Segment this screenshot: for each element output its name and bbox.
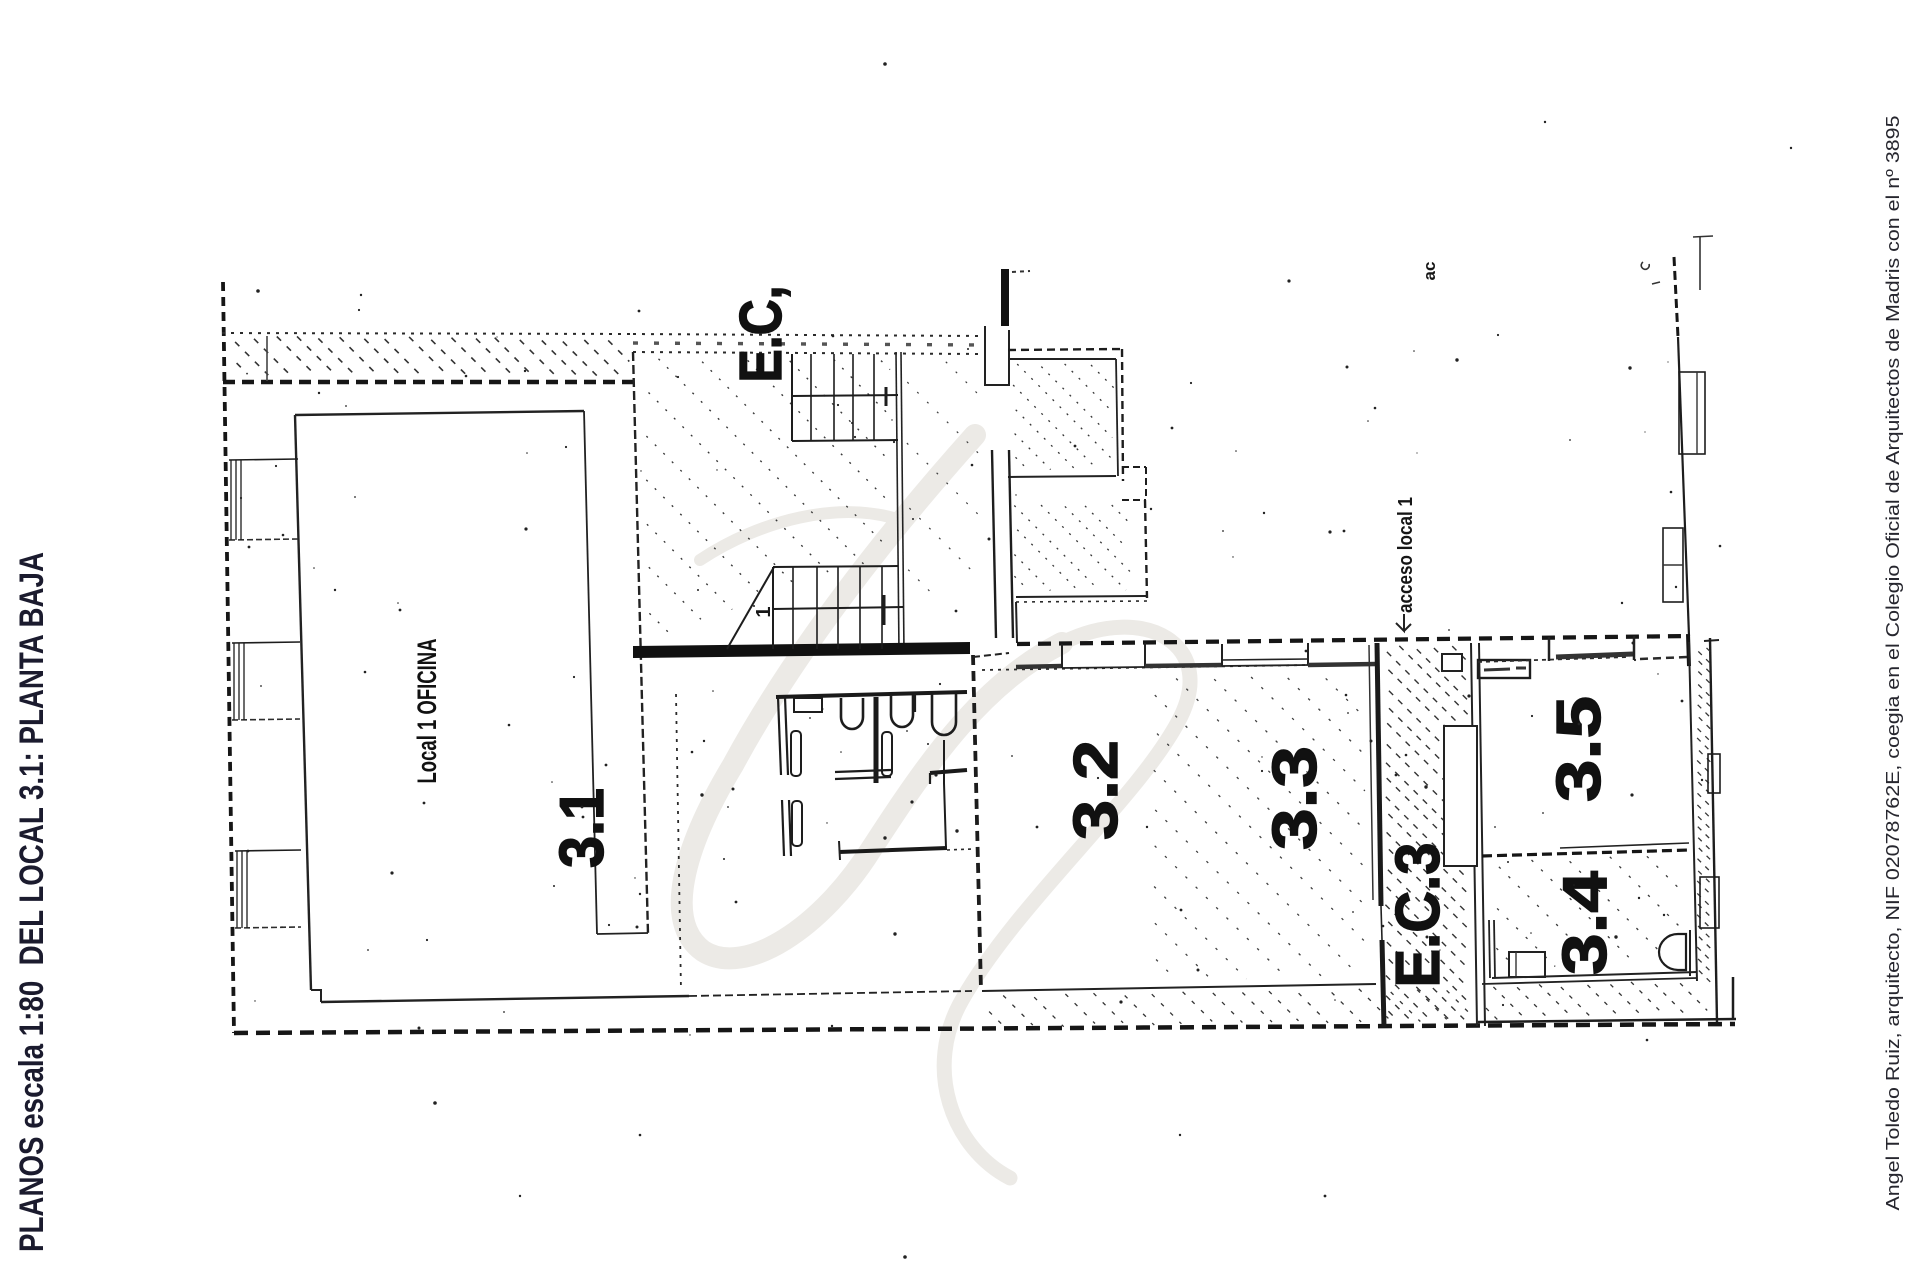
svg-text:E.C,: E.C, xyxy=(728,286,794,383)
svg-text:Angel Toledo Ruiz, arquitecto,: Angel Toledo Ruiz, arquitecto, NIF 02078… xyxy=(1882,116,1903,1211)
svg-text:PLANOS escala 1:80 DEL LOCAL: PLANOS escala 1:80 DEL LOCAL 3.1: PLANTA… xyxy=(13,552,51,1252)
svg-text:E.C.3: E.C.3 xyxy=(1384,843,1453,988)
svg-text:ac: ac xyxy=(1420,262,1439,281)
svg-text:1: 1 xyxy=(753,606,775,617)
svg-text:acceso local 1: acceso local 1 xyxy=(1395,497,1417,613)
svg-text:Local 1 OFICINA: Local 1 OFICINA xyxy=(412,639,442,784)
svg-text:3.2: 3.2 xyxy=(1062,740,1131,840)
svg-text:3.3: 3.3 xyxy=(1261,746,1330,850)
svg-text:3.4: 3.4 xyxy=(1551,870,1620,975)
svg-text:3.1: 3.1 xyxy=(548,788,617,868)
svg-text:3.5: 3.5 xyxy=(1545,696,1614,802)
